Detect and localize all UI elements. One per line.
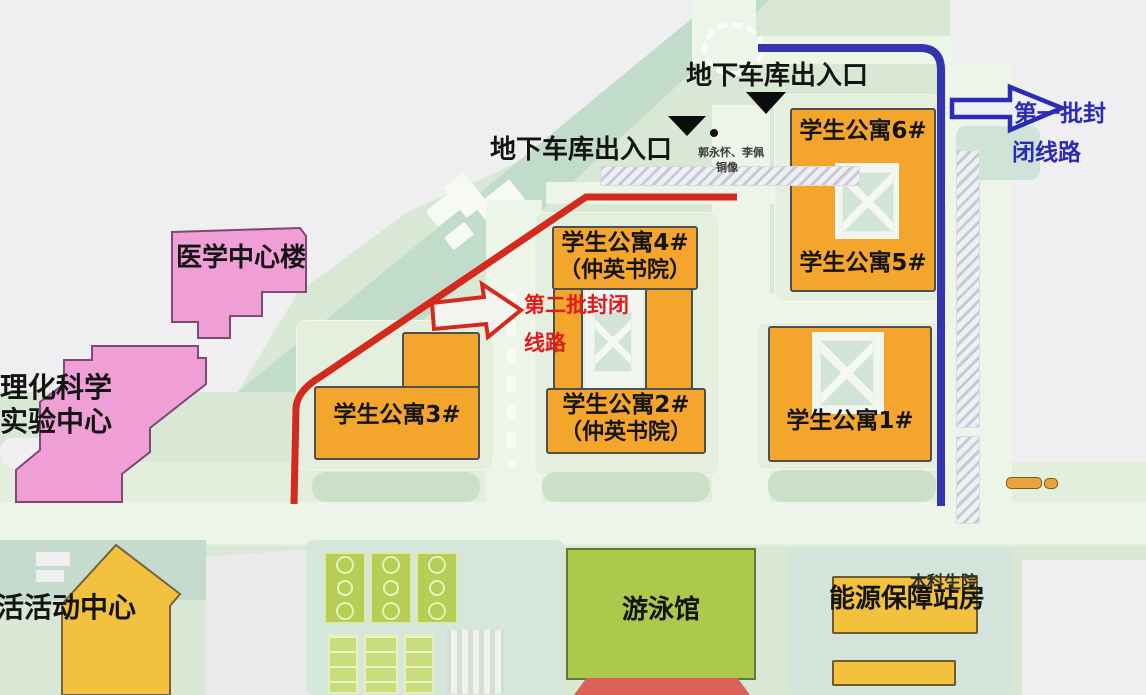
- lawn-south-apt3: [312, 472, 480, 502]
- building-apt3-upper: [402, 332, 480, 392]
- label-apt6: 学生公寓6#: [790, 118, 936, 144]
- label-apt3: 学生公寓3#: [316, 402, 478, 428]
- courtyard-x-apt1: [820, 340, 874, 406]
- road-pill-left: [0, 438, 58, 468]
- parking-dashes: [507, 292, 516, 467]
- volleyball-court: [404, 634, 434, 694]
- statue-dot-icon: [710, 129, 718, 137]
- label-swimming-pool: 游泳馆: [570, 596, 752, 626]
- small-structure: [1044, 478, 1058, 489]
- basketball-court: [324, 552, 366, 624]
- garage-triangle-icon: [668, 116, 706, 136]
- volleyball-court: [364, 634, 398, 694]
- garage-triangle-icon: [746, 92, 786, 114]
- offmap-top-right: [950, 0, 1146, 64]
- lawn-south-apt1: [768, 470, 936, 502]
- building-energy-annex: [832, 660, 956, 686]
- label-apt4: 学生公寓4#: [552, 230, 698, 256]
- building-apt4-east-wing: [645, 288, 693, 390]
- label-science-center-line2: 实验中心: [0, 406, 112, 438]
- basketball-court: [370, 552, 412, 624]
- label-apt4-college: （仲英书院）: [546, 258, 704, 283]
- label-apt1: 学生公寓1#: [770, 408, 930, 434]
- label-garage-top: 地下车库出入口: [686, 62, 868, 92]
- label-apt2-college: （仲英书院）: [542, 420, 710, 445]
- label-garage-left: 地下车库出入口: [490, 136, 672, 166]
- label-apt5: 学生公寓5#: [790, 250, 936, 276]
- label-undergraduate-school: 本科生院: [910, 568, 978, 593]
- label-statue-type: 铜像: [716, 159, 738, 175]
- label-statue-name: 郭永怀、李佩: [698, 144, 764, 160]
- small-structure: [1006, 477, 1042, 489]
- footprint-building: [36, 552, 70, 566]
- label-apt2: 学生公寓2#: [546, 392, 706, 418]
- lawn-south-apt2: [542, 472, 710, 502]
- courtyard-x-apt4-2: [594, 312, 632, 372]
- label-medical-center: 医学中心楼: [176, 244, 306, 274]
- campus-map: 地下车库出入口 地下车库出入口 郭永怀、李佩 铜像 学生公寓6# 学生公寓5# …: [0, 0, 1146, 695]
- footprint-building: [36, 570, 64, 582]
- offmap-bottom-right: [1022, 560, 1146, 695]
- label-science-center-line1: 理化科学: [0, 372, 112, 404]
- label-route-first-line2: 闭线路: [1012, 133, 1081, 167]
- basketball-court: [416, 552, 458, 624]
- label-activity-center: 活活动中心: [0, 592, 136, 624]
- bike-parking-right-lower: [956, 436, 980, 524]
- bleachers: [446, 630, 504, 694]
- label-route-second-line2: 线路: [524, 327, 566, 357]
- volleyball-court: [328, 634, 358, 694]
- label-route-first-line1: 第一批封: [1014, 94, 1106, 128]
- pool-entrance-roof: [574, 678, 750, 695]
- label-route-second-line1: 第二批封闭: [524, 289, 629, 319]
- bike-parking-right-upper: [956, 150, 980, 428]
